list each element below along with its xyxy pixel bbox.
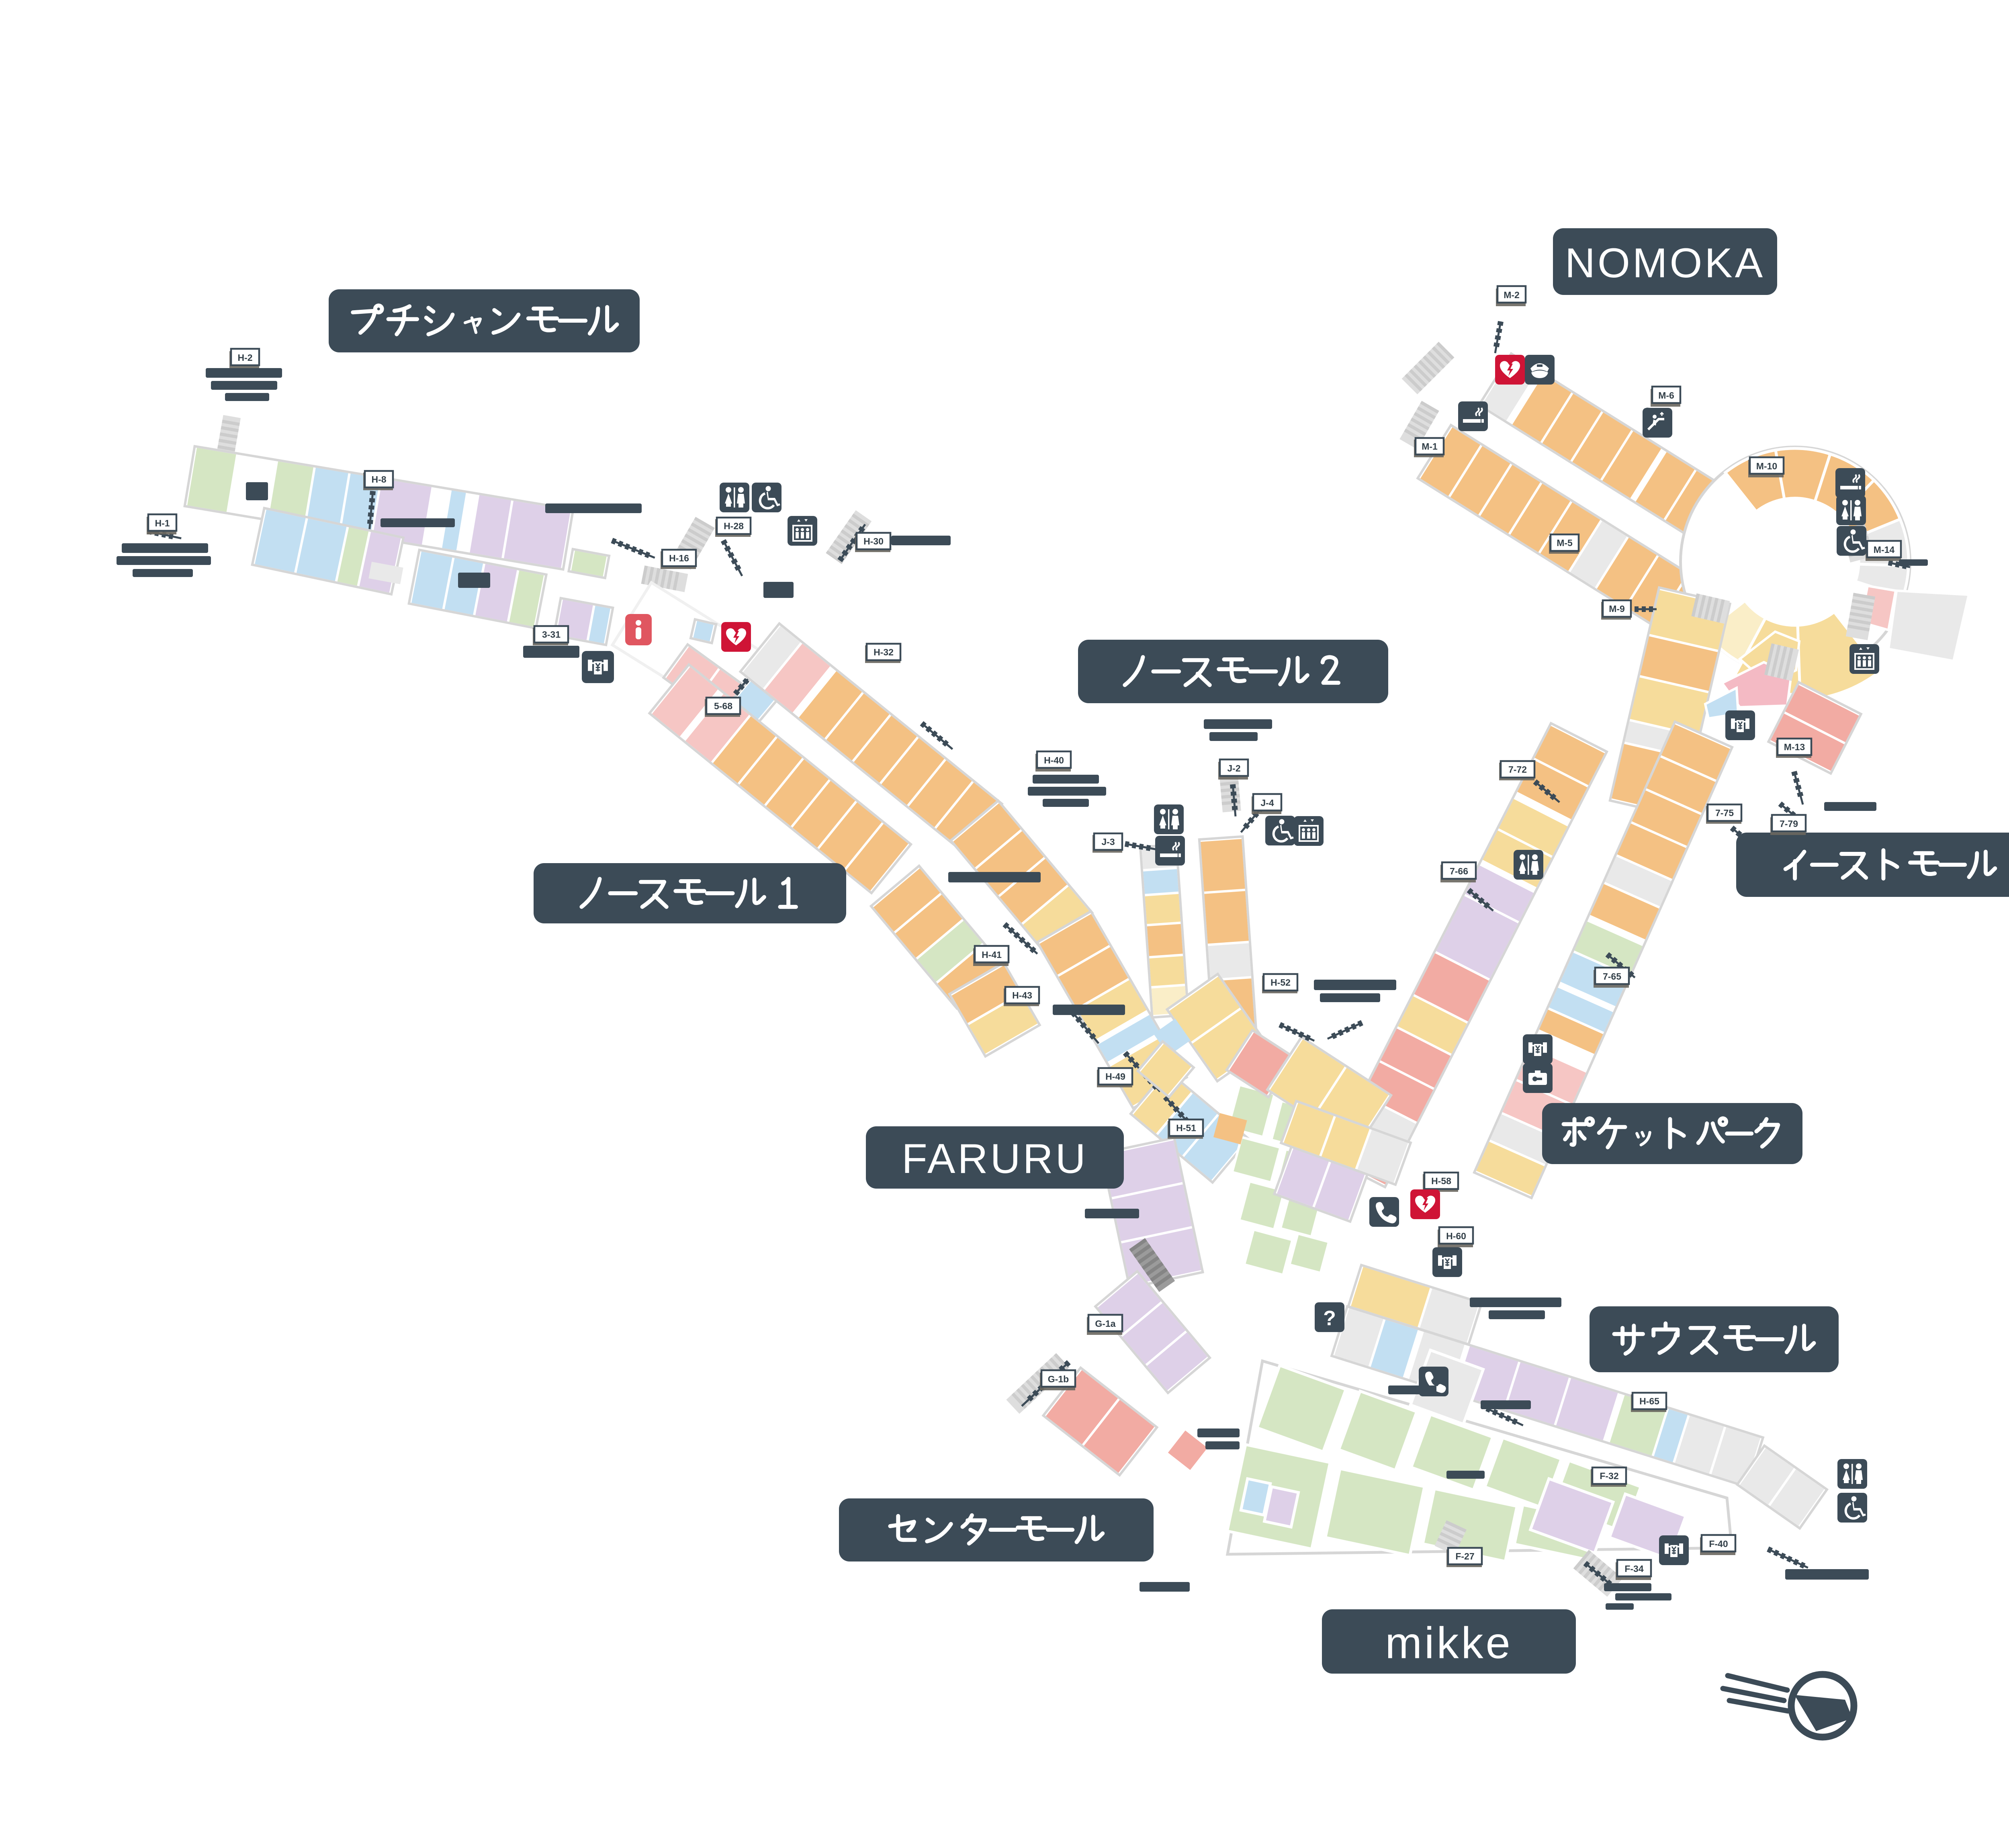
svg-text:H-40: H-40 [1044,755,1064,765]
svg-text:M-14: M-14 [1874,544,1895,555]
svg-text:G-1a: G-1a [1095,1318,1115,1329]
svg-text:F-27: F-27 [1455,1551,1474,1561]
svg-text:M-1: M-1 [1422,441,1438,452]
svg-text:F-34: F-34 [1624,1564,1644,1574]
svg-text:H-52: H-52 [1270,977,1291,988]
svg-text:H-28: H-28 [724,521,744,531]
svg-text:J-4: J-4 [1260,798,1274,808]
svg-text:7-65: 7-65 [1603,971,1621,982]
svg-text:7-75: 7-75 [1715,808,1734,818]
svg-text:M-10: M-10 [1756,461,1777,471]
svg-text:J-3: J-3 [1101,837,1115,847]
svg-text:M-6: M-6 [1658,390,1674,401]
svg-text:H-8: H-8 [371,474,386,485]
svg-text:H-58: H-58 [1431,1176,1451,1186]
svg-text:H-60: H-60 [1446,1231,1466,1241]
svg-text:M-2: M-2 [1504,290,1520,300]
svg-text:H-65: H-65 [1639,1396,1659,1406]
svg-text:H-30: H-30 [863,536,884,546]
svg-text:7-79: 7-79 [1780,819,1798,829]
svg-text:7-72: 7-72 [1508,764,1527,775]
svg-text:G-1b: G-1b [1048,1374,1069,1384]
svg-text:F-32: F-32 [1600,1471,1618,1481]
svg-text:H-49: H-49 [1105,1071,1125,1082]
svg-text:M-9: M-9 [1609,604,1625,614]
svg-text:7-66: 7-66 [1450,866,1468,876]
svg-text:H-1: H-1 [155,518,170,528]
svg-text:H-32: H-32 [874,647,894,657]
svg-text:H-41: H-41 [982,950,1002,960]
svg-text:M-13: M-13 [1784,742,1805,752]
svg-text:NOMOKA: NOMOKA [1565,240,1765,287]
svg-text:H-43: H-43 [1012,990,1032,1001]
svg-text:FARURU: FARURU [902,1136,1088,1182]
svg-text:H-51: H-51 [1176,1123,1196,1133]
svg-text:H-2: H-2 [237,352,252,363]
svg-text:5-68: 5-68 [714,701,732,711]
svg-text:3-31: 3-31 [542,629,561,640]
svg-text:J-2: J-2 [1227,763,1240,774]
svg-text:M-5: M-5 [1557,538,1573,548]
svg-text:H-16: H-16 [669,553,689,563]
svg-text:F-40: F-40 [1709,1539,1728,1549]
svg-text:mikke: mikke [1385,1619,1512,1668]
